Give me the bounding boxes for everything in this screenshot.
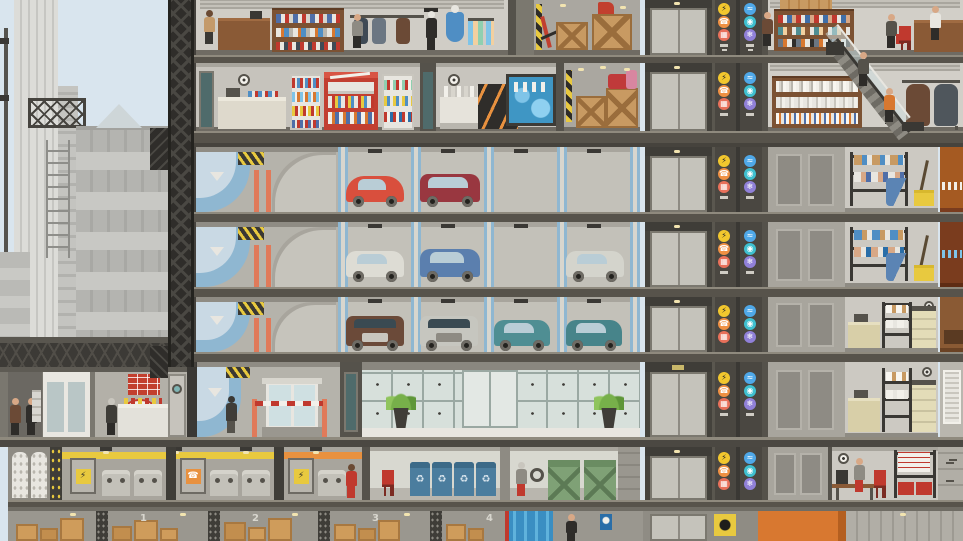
hanging-jacket — [372, 18, 386, 44]
person-torso — [884, 95, 895, 110]
cellar-lamp — [70, 513, 76, 516]
vent-icon: ◉ — [744, 85, 756, 97]
cardboard-box — [358, 528, 376, 541]
car-brown-truck[interactable] — [346, 316, 404, 346]
dumpster[interactable] — [584, 460, 616, 503]
riser-gauge — [746, 196, 754, 199]
street-slab — [0, 437, 963, 447]
supply-boxes — [854, 230, 904, 240]
books-row — [776, 81, 858, 92]
person-head — [764, 12, 771, 19]
person-head — [856, 458, 863, 465]
elevator-door[interactable] — [650, 72, 707, 131]
ramp-arrow — [210, 247, 224, 256]
garage-light — [226, 367, 250, 378]
bay-column — [557, 222, 567, 287]
books-row — [776, 113, 858, 124]
red-crate — [916, 482, 932, 495]
power-icon: ⚡ — [718, 72, 730, 84]
crane-platform — [150, 128, 168, 170]
person-head — [568, 514, 575, 521]
products-row — [292, 78, 320, 88]
generator-dial — [215, 478, 220, 483]
bay-column — [484, 297, 494, 352]
car-darkred-wagon[interactable] — [420, 174, 480, 202]
water-tank — [12, 452, 28, 498]
recycle-bin[interactable]: ♻ — [410, 462, 430, 496]
billboard-truss — [28, 98, 86, 128]
cellar-lamp — [292, 513, 298, 516]
riser-gauge — [748, 49, 753, 51]
table-leg — [836, 488, 839, 500]
elevator-door[interactable] — [650, 306, 707, 352]
paper-stacks — [886, 390, 908, 399]
recycle-bin[interactable]: ♻ — [476, 462, 496, 496]
garage-light — [238, 302, 264, 315]
garment-rail — [902, 80, 960, 83]
bollard — [254, 318, 259, 352]
shop-divider — [187, 367, 197, 437]
door-glass — [68, 382, 85, 432]
rack-column — [50, 447, 62, 500]
bay-column — [338, 147, 348, 212]
person-legs — [11, 423, 19, 435]
car-white-sedan[interactable] — [566, 251, 624, 277]
phone-icon: ☎ — [718, 465, 730, 477]
car-wheel — [386, 271, 397, 282]
elevator-door[interactable] — [650, 372, 707, 437]
elevator-lamp — [674, 300, 680, 303]
vacuum-cleaner — [886, 253, 910, 281]
mop-bucket — [914, 265, 934, 281]
rack-column — [274, 447, 284, 500]
elevator-lamp — [674, 2, 680, 5]
recycle-icon: ♻ — [416, 474, 425, 485]
riser-cluster: ⚡ ☎ ▦ ≈ ◉ ❄ — [712, 72, 766, 122]
riser-gauge — [722, 49, 727, 51]
elevator-lamp — [674, 150, 680, 153]
car-white-sedan[interactable] — [346, 251, 404, 277]
garment-bag — [906, 84, 930, 126]
hvac-icon: ❄ — [744, 478, 756, 490]
phone-icon: ☎ — [718, 318, 730, 330]
bay-light — [587, 224, 601, 228]
person-legs — [931, 28, 939, 40]
cardboard-box — [468, 528, 484, 541]
generator[interactable] — [134, 470, 162, 496]
person-walking[interactable] — [224, 396, 238, 433]
elevator-door[interactable] — [650, 8, 707, 55]
bay-column — [338, 222, 348, 287]
bay-column — [557, 147, 567, 212]
fridge-goods — [328, 96, 374, 108]
supply-boxes — [854, 155, 904, 165]
wall — [508, 0, 516, 55]
fire-escape — [46, 140, 70, 258]
car-wheel — [386, 196, 397, 207]
pink-bag — [626, 70, 637, 89]
power-icon: ⚡ — [718, 230, 730, 242]
car-wheel — [353, 271, 364, 282]
generator-dial — [336, 478, 341, 483]
person-on-escalator[interactable] — [882, 88, 896, 122]
pole-flag — [0, 95, 9, 101]
freight-handle — [946, 462, 954, 464]
grid-icon: ▦ — [718, 256, 730, 268]
mannequin-torso — [426, 18, 437, 38]
office-desk — [848, 322, 880, 348]
power-icon: ⚡ — [718, 3, 730, 15]
riser-gauge — [720, 113, 728, 116]
person-legs — [567, 533, 575, 541]
recycle-bin[interactable]: ♻ — [432, 462, 452, 496]
elevator-door[interactable] — [650, 156, 707, 212]
grid-icon: ▦ — [718, 29, 730, 41]
crate — [556, 22, 588, 50]
vacuum-cleaner — [886, 178, 910, 206]
car-wheel — [462, 196, 473, 207]
riser-gauge — [746, 271, 754, 274]
person-on-escalator[interactable] — [856, 52, 870, 86]
car-wheel — [427, 271, 438, 282]
elevator-plate — [672, 365, 684, 370]
bay-column — [411, 222, 421, 287]
person-torso — [346, 471, 357, 486]
corridor-panel — [800, 453, 822, 495]
grid-icon: ▦ — [718, 98, 730, 110]
lobby-door-section[interactable] — [462, 370, 518, 428]
barrier-arm[interactable] — [255, 401, 323, 406]
vent-icon: ◉ — [744, 318, 756, 330]
bollard — [266, 318, 271, 352]
power-icon: ⚡ — [294, 469, 309, 484]
elevator-door[interactable] — [650, 456, 707, 500]
person-employee[interactable] — [852, 458, 866, 492]
bollard — [254, 245, 259, 287]
mannequin-suit — [424, 11, 438, 50]
riser-cluster: ⚡ ☎ ▦ ≈ ◉ ❄ — [712, 372, 766, 422]
door[interactable] — [423, 72, 433, 129]
person-janitor[interactable] — [514, 462, 528, 496]
generator[interactable] — [242, 470, 270, 496]
bay-light — [514, 149, 528, 153]
person-pedestrian[interactable] — [8, 398, 22, 435]
bay-light — [441, 299, 455, 303]
person-torso — [10, 405, 21, 423]
pizza-box-stack — [898, 452, 930, 472]
power-icon: ⚡ — [718, 372, 730, 384]
car-wheel — [462, 271, 473, 282]
person-legs — [887, 36, 895, 48]
electrical-panel[interactable]: ⚡ — [288, 458, 314, 494]
ramp-arrow — [208, 388, 222, 397]
dumpster[interactable] — [548, 460, 580, 503]
metro-room[interactable] — [505, 511, 553, 541]
riser-gauge — [720, 44, 728, 47]
car-window — [504, 323, 534, 333]
bollard — [266, 245, 271, 287]
person-torso — [762, 19, 773, 34]
phone-panel[interactable]: ☎ — [180, 458, 206, 494]
garment-bag — [934, 84, 958, 126]
car-window — [358, 179, 386, 190]
door-glass — [47, 382, 64, 432]
electrical-panel[interactable]: ⚡ — [70, 458, 96, 494]
car-teal-sedan[interactable] — [566, 320, 622, 346]
corridor-panel — [808, 154, 834, 206]
store-counter — [218, 18, 270, 50]
truck-grille — [436, 333, 462, 342]
person-legs — [885, 110, 893, 122]
truck-windshield — [354, 319, 396, 328]
hvac-icon: ❄ — [744, 256, 756, 268]
hanging-lamp — [578, 68, 584, 71]
person-head — [888, 14, 895, 21]
cellar-lamp — [900, 513, 906, 516]
paper-stacks — [886, 320, 908, 328]
phone-icon: ☎ — [718, 385, 730, 397]
person-head — [518, 462, 525, 469]
wall-panels — [618, 447, 640, 500]
mannequin-head — [428, 11, 435, 18]
water-icon: ≈ — [744, 72, 756, 84]
game-scene: ⚡ ☎ ▦ ≈ ◉ ❄ — [0, 0, 963, 541]
hanging-lamp — [560, 4, 566, 7]
corridor-panel — [774, 453, 796, 495]
hanging-lamp — [600, 66, 606, 69]
cardboard-box — [60, 518, 84, 541]
counter-goods — [248, 91, 278, 97]
person-legs — [107, 423, 115, 435]
products-row — [384, 96, 412, 106]
wall-clock — [922, 367, 932, 377]
person-shopper[interactable] — [350, 14, 364, 48]
folded-clothes — [276, 42, 340, 50]
garage-light — [238, 152, 264, 165]
freight-elevator[interactable] — [938, 447, 963, 500]
bay-column — [484, 222, 494, 287]
products-row — [292, 120, 320, 128]
rack-column — [430, 511, 442, 541]
bottle-row — [942, 182, 962, 190]
fridge-shelf — [328, 82, 374, 94]
hose-coil — [530, 468, 544, 482]
escalator-bottom-landing — [902, 122, 924, 131]
person-worker[interactable] — [344, 464, 358, 498]
truck-grille — [362, 333, 388, 342]
orange-duct — [758, 511, 846, 541]
news-shelf — [32, 390, 41, 422]
store-door[interactable] — [199, 71, 214, 129]
coffee-machine — [836, 470, 848, 484]
cash-register — [250, 11, 262, 19]
person-shopper[interactable] — [760, 12, 774, 46]
cellar-number: 2 — [252, 513, 259, 524]
red-crate — [898, 482, 914, 495]
person-head — [348, 464, 355, 471]
person-torso — [854, 465, 865, 480]
cardboard-box — [40, 528, 58, 541]
lamp-glow — [313, 451, 319, 454]
wall-with-door — [500, 447, 510, 500]
room-bar[interactable] — [940, 147, 963, 212]
riser-gauge — [720, 271, 728, 274]
riser-gauge — [746, 44, 754, 47]
car-silver-truck[interactable] — [420, 316, 478, 346]
bay-column — [484, 147, 494, 212]
person-legs — [859, 74, 867, 86]
person-basement[interactable] — [564, 514, 578, 541]
bay-light — [368, 299, 382, 303]
person-customer[interactable] — [104, 398, 118, 435]
ramp-arrow — [210, 316, 224, 325]
pole-flag — [0, 38, 9, 44]
person-legs — [205, 32, 213, 44]
wood-desk — [944, 330, 963, 344]
freight-handle — [946, 480, 954, 482]
bay-light — [368, 149, 382, 153]
floor-slab — [190, 287, 963, 297]
booth-roof — [262, 378, 322, 384]
generator-dial — [139, 478, 144, 483]
hazard-post — [536, 4, 542, 50]
power-conduit-marker — [714, 514, 736, 536]
cardboard-box — [268, 518, 292, 541]
cellar-lamp — [180, 513, 186, 516]
wall-clock — [238, 74, 250, 86]
hanging-lamp — [624, 68, 630, 71]
car-wheel — [387, 340, 398, 351]
bay-column — [630, 147, 640, 212]
cardboard-box — [378, 520, 400, 541]
cardboard-box — [112, 526, 132, 541]
person-legs — [353, 36, 361, 48]
vent-icon: ◉ — [744, 465, 756, 477]
folded-clothes — [276, 28, 340, 37]
person-head — [354, 14, 361, 21]
corridor-panel — [808, 370, 834, 430]
water-tank — [31, 452, 47, 498]
hvac-icon: ❄ — [744, 331, 756, 343]
person-cashier[interactable] — [928, 6, 942, 40]
grid-icon: ▦ — [718, 478, 730, 490]
corridor-panel — [776, 303, 802, 347]
cardboard-box — [16, 524, 38, 541]
folded-clothes — [276, 14, 340, 23]
shoes-row — [778, 15, 850, 23]
person-torso — [516, 469, 527, 484]
gas-can — [598, 2, 614, 14]
person-head — [886, 88, 893, 95]
mannequin-legs — [427, 38, 435, 50]
cardboard-box — [160, 528, 178, 541]
riser-gauge — [746, 413, 754, 416]
vent-icon: ◉ — [744, 16, 756, 28]
hvac-icon: ❄ — [744, 98, 756, 110]
mop-bucket — [914, 190, 934, 206]
floor-slab — [190, 212, 963, 222]
power-icon: ⚡ — [76, 469, 91, 484]
mannequin-head — [451, 5, 459, 13]
generator[interactable] — [102, 470, 130, 496]
car-window — [576, 323, 606, 333]
shoebox-stack — [780, 0, 832, 9]
typewriter — [854, 390, 868, 398]
checkout-counter — [218, 97, 286, 129]
phone-icon: ☎ — [718, 243, 730, 255]
person-legs — [227, 421, 235, 433]
person-head — [860, 52, 867, 59]
person-torso — [930, 13, 941, 28]
car-teal-sedan[interactable] — [494, 320, 550, 346]
cardboard-box — [334, 524, 356, 541]
generator[interactable] — [318, 470, 346, 496]
products-row — [384, 80, 412, 90]
lobby-side-door[interactable] — [344, 372, 358, 432]
bay-light — [441, 224, 455, 228]
car-wheel — [605, 340, 616, 351]
car-red-coupe[interactable] — [346, 176, 404, 202]
water-icon: ≈ — [744, 230, 756, 242]
car-window — [430, 252, 464, 263]
person-torso — [106, 405, 117, 423]
hvac-icon: ❄ — [744, 181, 756, 193]
hotdog-counter — [118, 404, 168, 437]
person-legs — [517, 484, 525, 496]
cardboard-box — [446, 524, 466, 541]
crane-mast — [168, 0, 194, 367]
corridor-panel — [808, 229, 834, 281]
floor-slab — [190, 352, 963, 362]
recycle-bin[interactable]: ♻ — [454, 462, 474, 496]
generator[interactable] — [210, 470, 238, 496]
wall-sign-blue — [600, 514, 612, 530]
person-clerk[interactable] — [202, 10, 216, 44]
table-leg — [870, 488, 873, 500]
photocopier — [912, 306, 936, 348]
wall-clock — [838, 453, 849, 464]
paper-stacks — [886, 372, 908, 381]
mannequin-dress — [446, 12, 464, 42]
elevator-door[interactable] — [650, 231, 707, 287]
rack-column — [318, 511, 330, 541]
car-wheel — [461, 340, 472, 351]
aquarium-bottles — [514, 82, 546, 92]
generator-dial — [152, 478, 157, 483]
power-icon: ⚡ — [718, 452, 730, 464]
cardboard-box — [248, 527, 266, 541]
paper-stacks — [886, 305, 908, 313]
vent-icon: ◉ — [744, 385, 756, 397]
person-torso — [352, 21, 363, 36]
hvac-icon: ❄ — [744, 29, 756, 41]
car-blue-sedan[interactable] — [420, 249, 480, 277]
recycle-icon: ♻ — [482, 474, 491, 485]
products-row — [292, 92, 320, 102]
corridor-panel — [776, 370, 802, 430]
booth-base — [262, 427, 322, 437]
corridor-panel — [808, 303, 834, 347]
recycle-icon: ♻ — [460, 474, 469, 485]
grid-icon: ▦ — [718, 398, 730, 410]
crate — [606, 88, 638, 128]
products-row — [384, 112, 412, 122]
bay-light — [514, 224, 528, 228]
elevator-door[interactable] — [650, 514, 707, 541]
person-torso — [858, 59, 869, 74]
riser-cluster: ⚡ ☎ ▦ ≈ ◉ ❄ — [712, 155, 766, 205]
metro-red-edge — [505, 511, 509, 541]
